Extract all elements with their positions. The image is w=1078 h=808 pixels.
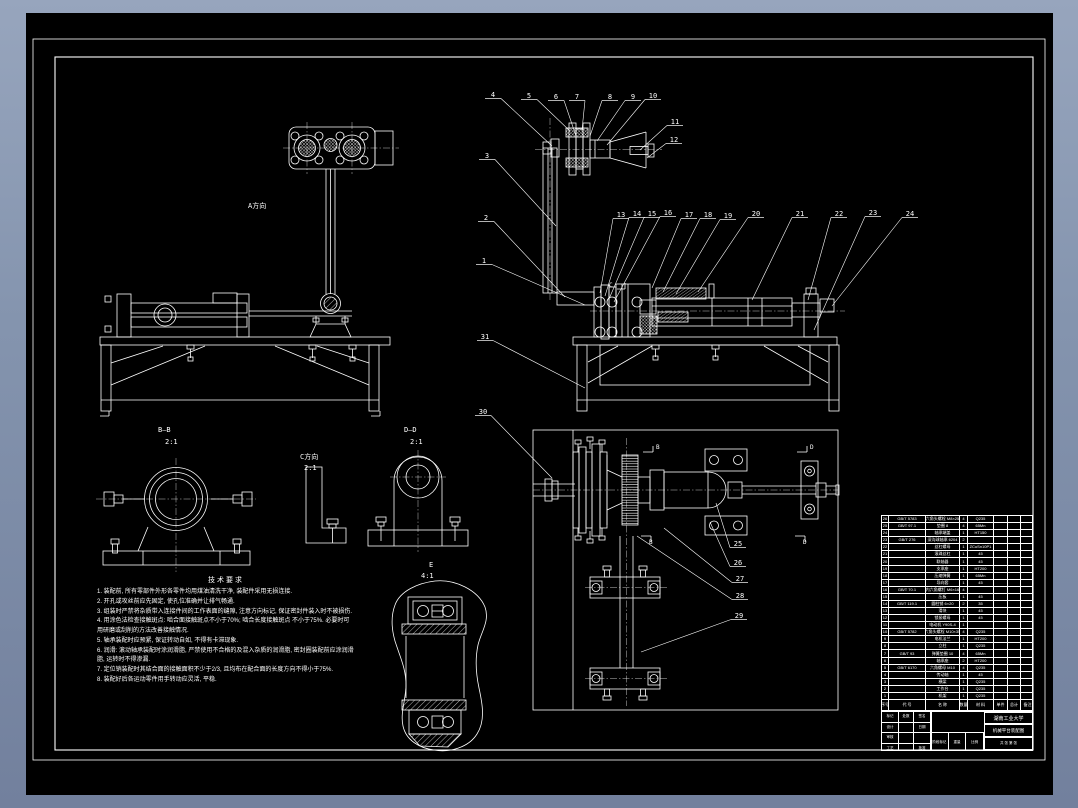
bom-row: 11电动机 Y90S-41	[882, 622, 1032, 629]
parts-list-table: 26GB/T 5783六角头螺栓 M8×254Q23525GB/T 97.1垫圈…	[881, 515, 1033, 711]
bom-cell: 立柱	[926, 643, 960, 649]
bom-cell	[1008, 672, 1021, 678]
bom-cell: 4	[960, 587, 968, 593]
bom-cell: GB/T 70.1	[889, 587, 926, 593]
bom-row: 10GB/T 5782六角头螺栓 M10×354Q235	[882, 629, 1032, 636]
bom-cell	[994, 551, 1008, 557]
bom-cell	[1021, 566, 1032, 572]
bom-cell: 4	[960, 650, 968, 656]
bom-cell: 11	[882, 622, 889, 628]
title-block-cell	[914, 733, 931, 743]
bom-cell	[1008, 615, 1021, 621]
bom-cell	[889, 672, 926, 678]
bom-cell	[1021, 672, 1032, 678]
callout-number-2: 2	[484, 214, 488, 222]
bom-header-cell: 序号	[882, 700, 889, 710]
callout-leader	[494, 222, 565, 298]
bom-cell	[1021, 558, 1032, 564]
bom-cell: 7	[882, 650, 889, 656]
bom-cell	[994, 636, 1008, 642]
bom-cell	[1021, 650, 1032, 656]
title-block-cell: 日期	[914, 723, 931, 733]
bom-cell: 45	[968, 608, 994, 614]
bom-cell	[1021, 693, 1032, 699]
bom-cell	[1008, 544, 1021, 550]
bom-cell	[889, 658, 926, 664]
bom-cell	[1021, 622, 1032, 628]
bom-cell	[1021, 643, 1032, 649]
callout-number-9: 9	[631, 93, 635, 101]
bom-cell: 六角头螺栓 M8×25	[926, 516, 960, 522]
bom-cell	[889, 573, 926, 579]
detail-b-b	[96, 458, 256, 572]
title-block-cell: 审核	[882, 733, 899, 743]
bom-cell	[1021, 544, 1032, 550]
bom-cell	[1008, 516, 1021, 522]
bom-cell: Q235	[968, 679, 994, 685]
bom-cell	[1008, 629, 1021, 635]
title-block-sheet-note: 共 张 第 张	[984, 737, 1033, 750]
bom-row: 3横梁1Q235	[882, 679, 1032, 686]
bom-cell: ZCuSn10P1	[968, 544, 994, 550]
bom-cell	[1008, 537, 1021, 543]
bom-cell: 35	[968, 601, 994, 607]
bom-cell	[994, 566, 1008, 572]
bom-cell: 45	[968, 672, 994, 678]
bom-cell: 1	[960, 693, 968, 699]
callout-number-16: 16	[664, 209, 672, 217]
bom-cell: 2	[960, 601, 968, 607]
bom-header-row: 序号代 号名 称数量材 料单件总计备注	[882, 700, 1032, 710]
bom-cell	[994, 650, 1008, 656]
bom-cell: 16	[882, 587, 889, 593]
bom-cell	[1008, 650, 1021, 656]
callout-leader	[698, 218, 748, 293]
tech-requirement-item: 4. 用涂色法检查接触斑点: 啮合面接触斑点不小于70%; 啮合长度接触斑点 不…	[97, 617, 355, 636]
bom-row: 14GB/T 119.1圆柱销 6×20235	[882, 601, 1032, 608]
bom-cell	[1021, 608, 1032, 614]
callout-leader	[663, 219, 700, 293]
bom-cell: 1	[960, 530, 968, 536]
callout-leader	[590, 101, 602, 137]
tech-requirement-item: 5. 轴承装配时应预紧, 保证转动自如, 不得有卡滞现象.	[97, 637, 355, 647]
bom-cell	[1021, 615, 1032, 621]
bom-cell	[1021, 530, 1032, 536]
bom-cell: GB/T 97.1	[889, 523, 926, 529]
callout-number-24: 24	[906, 210, 914, 218]
callout-leader	[492, 265, 585, 306]
title-block-cell: 处数	[899, 712, 914, 722]
bom-cell	[889, 622, 926, 628]
bom-header-cell: 备注	[1021, 700, 1032, 710]
bom-cell: 1	[960, 544, 968, 550]
bom-cell: 20	[882, 558, 889, 564]
bom-cell: 滑块	[926, 608, 960, 614]
bom-cell: HT150	[968, 530, 994, 536]
bom-cell	[889, 580, 926, 586]
bom-cell: 14	[882, 601, 889, 607]
bom-cell	[1021, 580, 1032, 586]
callout-leader	[597, 101, 625, 142]
bom-row: 15压板145	[882, 594, 1032, 601]
bom-row: 4传动轴145	[882, 672, 1032, 679]
bom-cell	[994, 580, 1008, 586]
view-label: D	[803, 539, 807, 546]
callout-leader	[582, 101, 585, 131]
bom-cell	[994, 587, 1008, 593]
callout-leader	[814, 217, 865, 331]
callout-leader	[607, 100, 645, 146]
bom-cell	[1008, 658, 1021, 664]
bom-cell: 1	[960, 608, 968, 614]
bom-cell: 4	[882, 672, 889, 678]
bom-cell	[1008, 665, 1021, 671]
callout-number-13: 13	[617, 211, 625, 219]
callout-number-15: 15	[648, 210, 656, 218]
bom-cell: 2	[882, 686, 889, 692]
bom-row: 16GB/T 70.1内六角螺钉 M6×164	[882, 587, 1032, 594]
view-label: C方向	[300, 452, 318, 461]
bom-cell	[1021, 658, 1032, 664]
bom-cell: 24	[882, 530, 889, 536]
bom-cell: 4	[960, 516, 968, 522]
callout-number-1: 1	[482, 257, 486, 265]
bom-cell	[994, 537, 1008, 543]
detail-d-d	[368, 450, 468, 552]
bom-cell	[1008, 551, 1021, 557]
callout-number-5: 5	[527, 92, 531, 100]
bom-cell: HT200	[968, 636, 994, 642]
bom-cell	[889, 530, 926, 536]
callout-leader	[609, 218, 644, 300]
bom-cell: 压缩弹簧	[926, 573, 960, 579]
bom-cell	[994, 622, 1008, 628]
bom-cell: 13	[882, 608, 889, 614]
bom-cell	[1021, 516, 1032, 522]
bom-cell: 45	[968, 551, 994, 557]
view-direction-a	[283, 122, 399, 294]
bom-cell	[1021, 537, 1032, 543]
bom-cell	[994, 530, 1008, 536]
bom-cell: 圆柱销 6×20	[926, 601, 960, 607]
tech-requirement-item: 3. 组装时严禁将杂质带入连接件间的工作表面的缝隙, 注意方向标记, 保证密封件…	[97, 608, 355, 618]
bom-cell: 1	[960, 566, 968, 572]
bom-cell: 电动机 Y90S-4	[926, 622, 960, 628]
callout-leader	[832, 218, 902, 307]
bom-cell	[1008, 523, 1021, 529]
bom-cell: HT200	[968, 566, 994, 572]
callout-number-10: 10	[649, 92, 657, 100]
callout-leader	[710, 522, 730, 567]
bom-cell: 1	[960, 643, 968, 649]
bom-cell	[994, 679, 1008, 685]
detail-e	[392, 581, 486, 751]
title-block-drawing-title: 机械平台装配图	[984, 724, 1033, 737]
bom-cell	[994, 643, 1008, 649]
view-label: 2:1	[165, 438, 178, 446]
bom-cell: GB/T 93	[889, 650, 926, 656]
callout-number-25: 25	[734, 540, 742, 548]
tech-requirement-item: 7. 定位销装配时其结合面的接触面积不少于2/3, 且均布在配合面的长度方向不得…	[97, 666, 355, 676]
view-label: C	[609, 282, 613, 289]
bom-cell: 45	[968, 615, 994, 621]
callout-number-14: 14	[633, 210, 641, 218]
bom-cell	[1008, 686, 1021, 692]
bom-cell: 横梁	[926, 679, 960, 685]
bom-cell	[889, 615, 926, 621]
bom-cell: GB/T 276	[889, 537, 926, 543]
bom-cell	[1008, 636, 1021, 642]
bom-cell	[994, 686, 1008, 692]
bom-cell	[994, 601, 1008, 607]
bom-row: 17导向套145	[882, 580, 1032, 587]
bom-cell	[1008, 580, 1021, 586]
callout-number-17: 17	[685, 211, 693, 219]
bom-cell: 滚珠丝杠	[926, 551, 960, 557]
bom-cell: 1	[882, 693, 889, 699]
bom-cell: 1	[960, 636, 968, 642]
bom-cell	[1008, 573, 1021, 579]
bom-row: 23GB/T 276深沟球轴承 62042	[882, 537, 1032, 544]
bom-cell: 17	[882, 580, 889, 586]
bom-cell: 垫圈 8	[926, 523, 960, 529]
bom-cell	[994, 629, 1008, 635]
bom-row: 20联轴器145	[882, 558, 1032, 565]
bom-cell	[1021, 665, 1032, 671]
tech-requirement-item: 2. 开孔或攻丝前应先固定, 使孔位准确并让排气畅通.	[97, 598, 355, 608]
view-plan	[533, 430, 839, 710]
bom-cell: 45	[968, 594, 994, 600]
bom-cell	[968, 622, 994, 628]
callout-number-11: 11	[671, 118, 679, 126]
bom-cell: 65Mn	[968, 573, 994, 579]
bom-cell: 25	[882, 523, 889, 529]
callout-layer: 1234567891011121314151617181920212223242…	[475, 91, 918, 652]
bom-cell: 9	[882, 636, 889, 642]
callout-number-30: 30	[479, 408, 487, 416]
bom-cell	[889, 608, 926, 614]
bom-cell: 弹簧垫圈 10	[926, 650, 960, 656]
title-block-stage-grid: 阶段标记重量比例	[931, 712, 985, 750]
bom-row: 1机架1Q235	[882, 693, 1032, 700]
callout-leader	[652, 219, 681, 289]
bom-cell	[1008, 558, 1021, 564]
bom-cell	[994, 544, 1008, 550]
bom-cell: 22	[882, 544, 889, 550]
bom-cell: 1	[960, 573, 968, 579]
bom-cell: GB/T 119.1	[889, 601, 926, 607]
bom-cell: GB/T 5782	[889, 629, 926, 635]
bom-cell: 2	[960, 537, 968, 543]
title-block-school: 湖南工业大学	[984, 712, 1033, 724]
bom-cell	[1008, 643, 1021, 649]
callout-leader	[808, 218, 831, 301]
bom-cell	[994, 658, 1008, 664]
bom-cell: Q235	[968, 629, 994, 635]
bom-header-cell: 代 号	[889, 700, 926, 710]
bom-cell: Q235	[968, 643, 994, 649]
tech-requirement-item: 8. 装配好后各运动零件用手转动应灵活, 平稳.	[97, 676, 355, 686]
bom-cell	[889, 594, 926, 600]
callout-number-12: 12	[670, 136, 678, 144]
bom-cell: 8	[882, 643, 889, 649]
bolt-glyphs-side	[187, 345, 356, 361]
title-block-stage-cell: 比例	[966, 733, 984, 751]
tech-requirement-item: 6. 润滑: 滚动轴承装配时涂润滑脂, 严禁使用不合格的及混入杂质的润滑脂, 密…	[97, 647, 355, 666]
bom-cell: 4	[960, 665, 968, 671]
bom-cell	[994, 615, 1008, 621]
bom-cell: 1	[960, 686, 968, 692]
bom-cell	[889, 693, 926, 699]
bom-cell: 10	[882, 629, 889, 635]
bom-cell	[994, 516, 1008, 522]
bom-header-cell: 总计	[1008, 700, 1021, 710]
callout-leader	[664, 528, 732, 583]
bom-cell: 23	[882, 537, 889, 543]
bom-header-cell: 数量	[960, 700, 968, 710]
bom-cell: 1	[960, 594, 968, 600]
bom-cell	[1021, 551, 1032, 557]
bom-cell: Q235	[968, 665, 994, 671]
bom-cell	[1021, 523, 1032, 529]
title-block-cell: 标记	[882, 712, 899, 722]
bom-cell: 轴承座	[926, 658, 960, 664]
tech-requirement-item: 1. 装配前, 所有零部件外形各零件均用煤油清洗干净, 装配件采用无损连接.	[97, 588, 355, 598]
callout-number-22: 22	[835, 210, 843, 218]
title-block-left-row: 设计日期	[882, 723, 931, 734]
bom-cell	[1008, 530, 1021, 536]
callout-number-19: 19	[724, 212, 732, 220]
callout-leader	[640, 126, 667, 151]
view-label: D—D	[404, 426, 417, 434]
title-block-cell: 设计	[882, 723, 899, 733]
bom-cell	[889, 544, 926, 550]
bom-cell: 18	[882, 573, 889, 579]
bom-cell: 六角头螺栓 M10×35	[926, 629, 960, 635]
bom-cell: 45	[968, 558, 994, 564]
bom-cell	[994, 693, 1008, 699]
bom-cell	[889, 551, 926, 557]
title-block-cell: 签名	[914, 712, 931, 722]
bom-cell: 1	[960, 580, 968, 586]
view-side	[100, 293, 390, 416]
bom-row: 22丝杠螺母1ZCuSn10P1	[882, 544, 1032, 551]
callout-number-7: 7	[575, 93, 579, 101]
title-block-cell	[899, 733, 914, 743]
bom-cell: 65Mn	[968, 650, 994, 656]
callout-leader	[614, 217, 660, 303]
bom-cell: 26	[882, 516, 889, 522]
bom-cell: 电机法兰	[926, 636, 960, 642]
bom-cell	[1021, 679, 1032, 685]
bolt-glyphs-front	[652, 345, 719, 360]
callout-leader	[495, 160, 556, 227]
bom-cell: 传动轴	[926, 672, 960, 678]
bom-row: 26GB/T 5783六角头螺栓 M8×254Q235	[882, 516, 1032, 523]
bom-cell	[889, 643, 926, 649]
bom-header-cell: 材 料	[968, 700, 994, 710]
bom-cell: 1	[960, 551, 968, 557]
callout-leader	[501, 99, 552, 147]
bom-cell: 6	[882, 658, 889, 664]
bom-row: 8立柱1Q235	[882, 643, 1032, 650]
title-block-cell: 工艺	[882, 744, 899, 751]
bom-cell	[1008, 587, 1021, 593]
title-block-left-grid: 标记处数签名设计日期审核工艺批准	[882, 712, 932, 750]
bom-cell	[1008, 679, 1021, 685]
view-label: 4:1	[421, 572, 434, 580]
callout-number-26: 26	[734, 559, 742, 567]
cad-viewer-background: 1234567891011121314151617181920212223242…	[0, 0, 1078, 808]
view-label: E	[429, 561, 433, 569]
title-block-left-row: 标记处数签名	[882, 712, 931, 723]
view-label: 2:1	[410, 438, 423, 446]
bom-cell: 21	[882, 551, 889, 557]
bom-cell: 4	[960, 523, 968, 529]
bom-row: 6轴承座2HT200	[882, 658, 1032, 665]
bom-cell	[1021, 573, 1032, 579]
callout-number-23: 23	[869, 209, 877, 217]
bom-cell: 1	[960, 672, 968, 678]
bom-cell	[968, 537, 994, 543]
bom-cell: 45	[968, 580, 994, 586]
bom-row: 13滑块145	[882, 608, 1032, 615]
bom-cell	[889, 679, 926, 685]
bom-cell	[994, 665, 1008, 671]
title-block-stage-row: 阶段标记重量比例	[931, 732, 984, 751]
title-block-cell: 批准	[914, 744, 931, 751]
callout-number-20: 20	[752, 210, 760, 218]
bom-row: 7GB/T 93弹簧垫圈 10465Mn	[882, 650, 1032, 657]
bom-cell: 工作台	[926, 686, 960, 692]
title-block-stage-cell: 重量	[949, 733, 967, 751]
view-label: D	[810, 444, 814, 451]
view-label: B	[656, 444, 660, 451]
bom-cell: 1	[960, 622, 968, 628]
bom-cell	[1008, 566, 1021, 572]
bom-header-cell: 名 称	[926, 700, 960, 710]
bom-cell: 支承座	[926, 566, 960, 572]
bom-cell: 轴承端盖	[926, 530, 960, 536]
title-block-left-row: 工艺批准	[882, 744, 931, 751]
bom-cell	[994, 672, 1008, 678]
callout-number-29: 29	[735, 612, 743, 620]
bom-cell: 3	[882, 679, 889, 685]
bom-cell	[1008, 594, 1021, 600]
view-front	[535, 118, 845, 411]
callout-number-6: 6	[554, 93, 558, 101]
bom-row: 9电机法兰1HT200	[882, 636, 1032, 643]
bom-cell	[889, 636, 926, 642]
callout-number-28: 28	[736, 592, 744, 600]
bom-cell: 1	[960, 558, 968, 564]
bom-cell: GB/T 6170	[889, 665, 926, 671]
callout-leader	[647, 144, 666, 159]
bom-row: 12锁紧螺母145	[882, 615, 1032, 622]
bom-cell: 19	[882, 566, 889, 572]
bom-cell: Q235	[968, 686, 994, 692]
bom-cell: 5	[882, 665, 889, 671]
bom-cell: 六角螺母 M10	[926, 665, 960, 671]
callout-number-8: 8	[608, 93, 612, 101]
bom-row: 18压缩弹簧165Mn	[882, 573, 1032, 580]
callout-number-27: 27	[736, 575, 744, 583]
bom-cell	[994, 573, 1008, 579]
bom-cell	[1008, 622, 1021, 628]
bom-cell: 65Mn	[968, 523, 994, 529]
bom-cell	[994, 608, 1008, 614]
callout-leader	[491, 416, 552, 479]
